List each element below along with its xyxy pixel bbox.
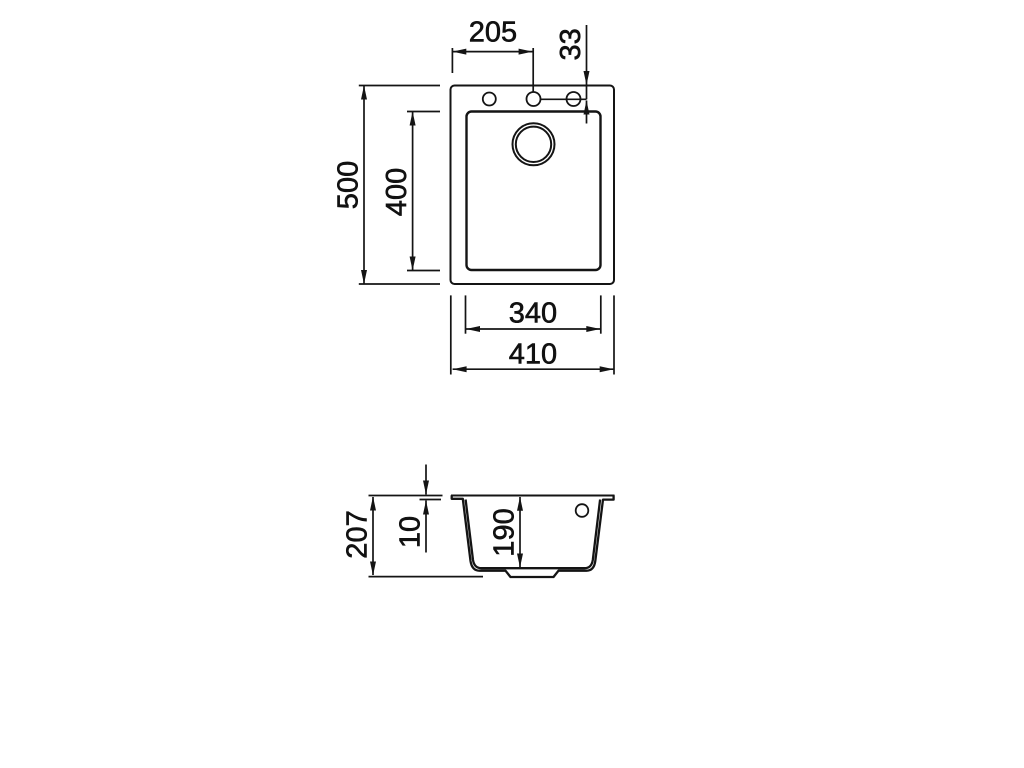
svg-text:207: 207 — [342, 510, 374, 558]
svg-text:33: 33 — [555, 28, 587, 60]
svg-text:190: 190 — [489, 508, 521, 556]
svg-text:10: 10 — [395, 516, 427, 548]
svg-text:340: 340 — [509, 297, 557, 329]
svg-text:410: 410 — [509, 338, 557, 370]
svg-text:500: 500 — [332, 161, 364, 209]
svg-text:205: 205 — [469, 16, 517, 48]
svg-text:400: 400 — [381, 168, 413, 216]
